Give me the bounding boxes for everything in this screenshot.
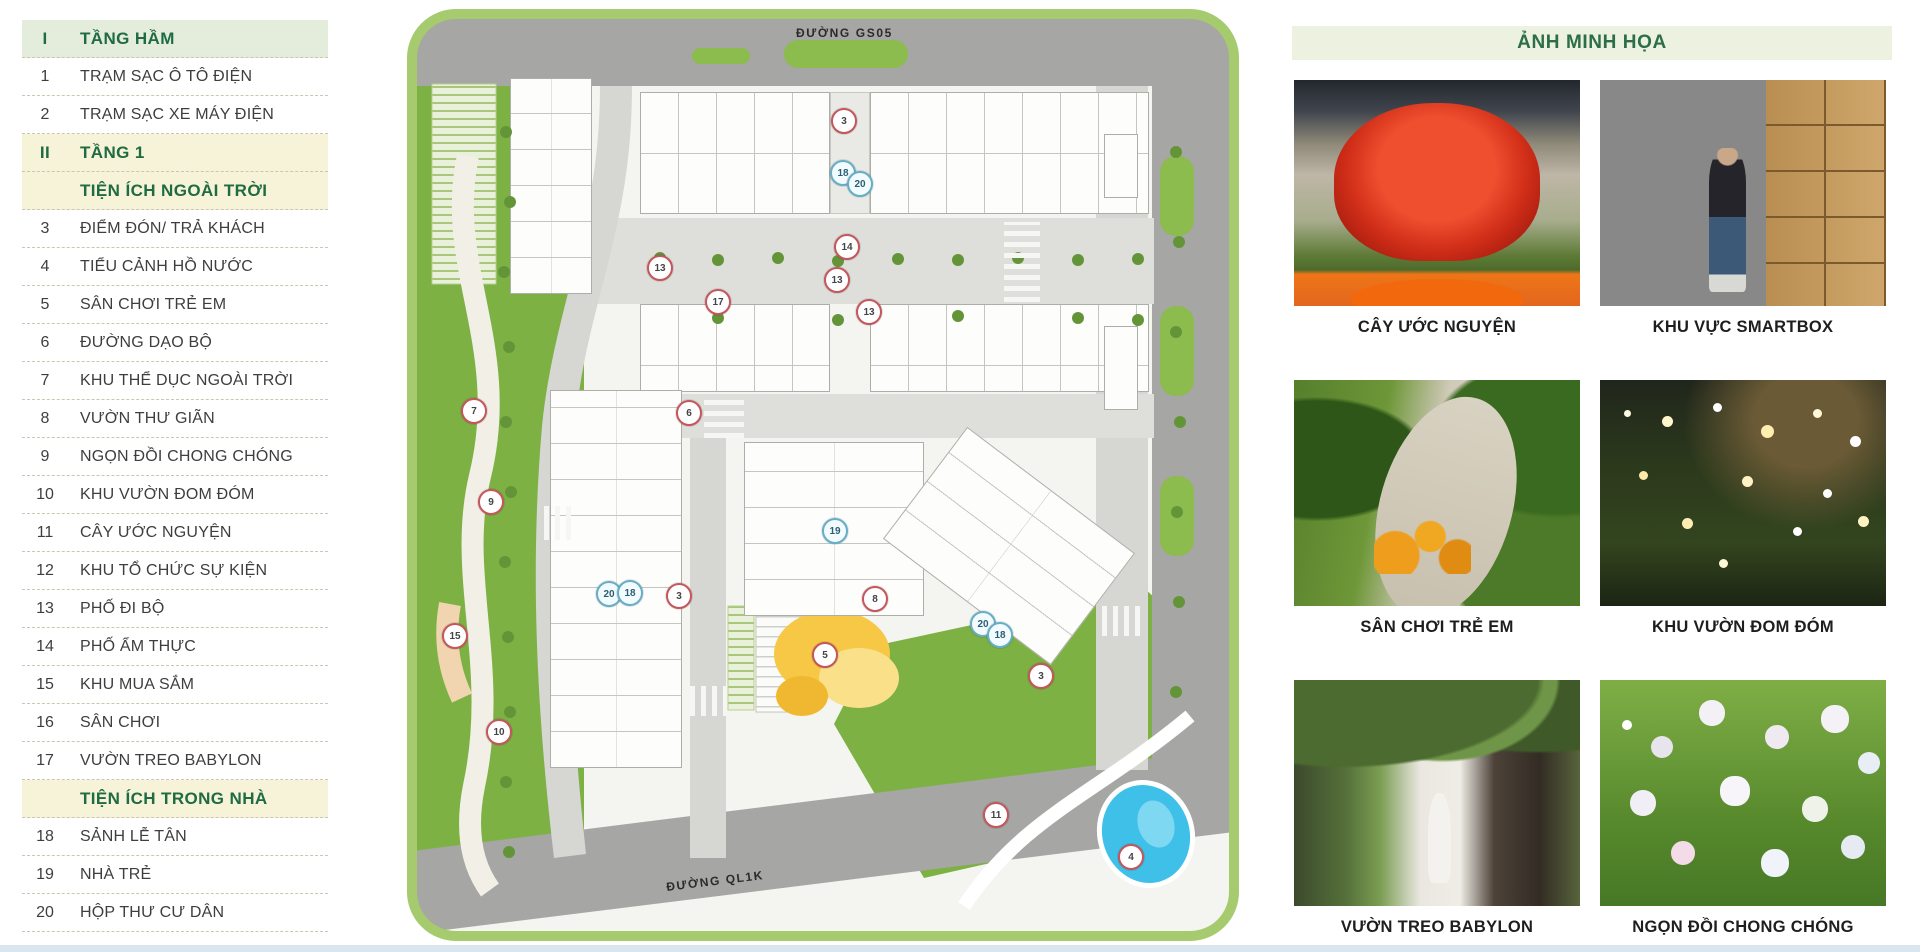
legend-row-label: NGỌN ĐỒI CHONG CHÓNG [68,448,293,466]
plan-marker-17: 17 [705,289,731,315]
plan-marker-number: 13 [831,275,842,286]
legend-row-number: 17 [22,752,68,770]
legend-row-5: 5 SÂN CHƠI TRẺ EM [22,286,328,324]
photo-caption: SÂN CHƠI TRẺ EM [1284,618,1590,637]
legend-row-label: TIỂU CẢNH HỒ NƯỚC [68,258,253,276]
plan-marker-19: 19 [822,518,848,544]
legend-row-number: 20 [22,904,68,922]
road-label-gs05: ĐƯỜNG GS05 [796,26,893,40]
legend-row-4: 4 TIỂU CẢNH HỒ NƯỚC [22,248,328,286]
plan-marker-number: 10 [493,727,504,738]
legend-row-label: HỘP THƯ CƯ DÂN [68,904,224,922]
plan-marker-number: 18 [994,630,1005,641]
plan-marker-7: 7 [461,398,487,424]
median-tree-dots [1170,146,1182,158]
photo-image [1294,80,1580,306]
plan-marker-20: 20 [847,171,873,197]
plan-marker-5: 5 [812,642,838,668]
legend-row-number: 16 [22,714,68,732]
gallery-photo-1: CÂY ƯỚC NGUYỆN [1294,80,1580,306]
plan-marker-13: 13 [856,299,882,325]
crosswalk [544,506,574,540]
site-plan-map: ĐƯỜNG GS05 ĐƯỜNG QL1K 3 18 20 14 13 13 1… [404,6,1242,944]
legend-row-number: 1 [22,68,68,86]
plan-marker-18: 18 [987,622,1013,648]
building-block-row-a1 [640,92,830,214]
plan-marker-9: 9 [478,489,504,515]
plan-marker-number: 8 [872,594,878,605]
legend-row-14: 14 PHỐ ẨM THỰC [22,628,328,666]
legend-row-number: 8 [22,410,68,428]
legend-row-label: TIỆN ÍCH NGOÀI TRỜI [68,181,267,201]
plan-marker-number: 17 [712,297,723,308]
legend-row-number: 11 [22,524,68,542]
legend-row-number: 2 [22,106,68,124]
legend-row-10: 10 KHU VƯỜN ĐOM ĐÓM [22,476,328,514]
legend-row-number: 18 [22,828,68,846]
masterplan-page: I TẦNG HẦM 1 TRẠM SẠC Ô TÔ ĐIỆN 2 TRẠM S… [0,0,1920,952]
crosswalk [1102,606,1142,636]
plan-marker-11: 11 [983,802,1009,828]
legend-row-i: I TẦNG HẦM [22,20,328,58]
gallery-header-band: ẢNH MINH HỌA [1292,26,1892,60]
legend-row-number: 13 [22,600,68,618]
legend-row-label: PHỐ ĐI BỘ [68,600,164,618]
building-block-small-2 [1104,326,1138,410]
plan-marker-10: 10 [486,719,512,745]
legend-row-label: KHU THỂ DỤC NGOÀI TRỜI [68,372,293,390]
legend-row-17: 17 VƯỜN TREO BABYLON [22,742,328,780]
legend-row-number: I [22,29,68,49]
photo-image [1600,80,1886,306]
plan-marker-number: 5 [822,650,828,661]
photo-image [1294,380,1580,606]
plan-marker-number: 6 [686,408,692,419]
legend-row-label: ĐƯỜNG DẠO BỘ [68,334,212,352]
gallery-photo-4: KHU VƯỜN ĐOM ĐÓM [1600,380,1886,606]
plan-marker-number: 13 [863,307,874,318]
legend-row-label: TIỆN ÍCH TRONG NHÀ [68,789,268,809]
plan-marker-number: 14 [841,242,852,253]
legend-row: TIỆN ÍCH NGOÀI TRỜI [22,172,328,210]
legend-row-label: SẢNH LỄ TÂN [68,828,187,846]
plan-marker-3: 3 [1028,663,1054,689]
legend-row-7: 7 KHU THỂ DỤC NGOÀI TRỜI [22,362,328,400]
building-block-c [550,390,682,768]
plan-marker-13: 13 [824,267,850,293]
photo-caption: CÂY ƯỚC NGUYỆN [1284,318,1590,337]
gallery-photo-2: KHU VỰC SMARTBOX [1600,80,1886,306]
legend-row-12: 12 KHU TỔ CHỨC SỰ KIỆN [22,552,328,590]
photo-image [1294,680,1580,906]
legend-row: TIỆN ÍCH TRONG NHÀ [22,780,328,818]
legend-row-1: 1 TRẠM SẠC Ô TÔ ĐIỆN [22,58,328,96]
plan-marker-number: 3 [1038,671,1044,682]
legend-row-label: PHỐ ẨM THỰC [68,638,196,656]
plan-marker-15: 15 [442,623,468,649]
legend-row-number: 4 [22,258,68,276]
legend-row-3: 3 ĐIỂM ĐÓN/ TRẢ KHÁCH [22,210,328,248]
legend-row-number: II [22,143,68,163]
legend-row-number: 15 [22,676,68,694]
plan-marker-14: 14 [834,234,860,260]
photo-image [1600,380,1886,606]
plan-marker-number: 20 [977,619,988,630]
legend-row-label: CÂY ƯỚC NGUYỆN [68,524,232,542]
legend-row-15: 15 KHU MUA SẮM [22,666,328,704]
plan-marker-number: 3 [841,116,847,127]
plan-marker-number: 20 [603,589,614,600]
plan-marker-number: 18 [624,588,635,599]
plan-marker-number: 4 [1128,852,1134,863]
legend-row-number: 19 [22,866,68,884]
legend-row-label: KHU VƯỜN ĐOM ĐÓM [68,486,255,504]
legend-row-2: 2 TRẠM SẠC XE MÁY ĐIỆN [22,96,328,134]
plan-marker-number: 7 [471,406,477,417]
legend-row-6: 6 ĐƯỜNG DẠO BỘ [22,324,328,362]
legend-row-label: TẦNG HẦM [68,29,175,49]
legend-row-label: TRẠM SẠC XE MÁY ĐIỆN [68,106,274,124]
legend-row-label: SÂN CHƠI [68,714,160,732]
legend-row-number: 10 [22,486,68,504]
photo-caption: KHU VƯỜN ĐOM ĐÓM [1590,618,1896,637]
plan-marker-number: 15 [449,631,460,642]
legend-row-label: SÂN CHƠI TRẺ EM [68,296,226,314]
legend-row-number: 3 [22,220,68,238]
photo-caption: VƯỜN TREO BABYLON [1284,918,1590,937]
plan-marker-3: 3 [666,583,692,609]
bottom-edge-strip [0,945,1920,952]
plan-marker-4: 4 [1118,844,1144,870]
gallery-photo-6: NGỌN ĐỒI CHONG CHÓNG [1600,680,1886,906]
crosswalk [1004,222,1040,302]
photo-image [1600,680,1886,906]
legend-row-11: 11 CÂY ƯỚC NGUYỆN [22,514,328,552]
legend-row-label: KHU MUA SẮM [68,676,194,694]
building-block-small-1 [1104,134,1138,198]
plan-marker-number: 3 [676,591,682,602]
legend-row-number: 14 [22,638,68,656]
plan-marker-6: 6 [676,400,702,426]
plan-marker-number: 20 [854,179,865,190]
photo-caption: KHU VỰC SMARTBOX [1590,318,1896,337]
plan-marker-18: 18 [617,580,643,606]
legend-row-label: ĐIỂM ĐÓN/ TRẢ KHÁCH [68,220,265,238]
legend-row-20: 20 HỘP THƯ CƯ DÂN [22,894,328,932]
legend-row-label: TẦNG 1 [68,143,145,163]
legend-row-label: VƯỜN TREO BABYLON [68,752,262,770]
legend-row-19: 19 NHÀ TRẺ [22,856,328,894]
legend-row-number: 6 [22,334,68,352]
plan-marker-number: 13 [654,263,665,274]
gallery-photo-3: SÂN CHƠI TRẺ EM [1294,380,1580,606]
plan-marker-3: 3 [831,108,857,134]
legend-row-8: 8 VƯỜN THƯ GIÃN [22,400,328,438]
legend-row-label: VƯỜN THƯ GIÃN [68,410,215,428]
building-block-row-b1 [640,304,830,392]
plan-marker-number: 18 [837,168,848,179]
legend-row-label: TRẠM SẠC Ô TÔ ĐIỆN [68,68,252,86]
building-block-tall [510,78,592,294]
legend-row-18: 18 SẢNH LỄ TÂN [22,818,328,856]
legend-row-number: 5 [22,296,68,314]
legend-row-label: KHU TỔ CHỨC SỰ KIỆN [68,562,267,580]
photo-gallery: CÂY ƯỚC NGUYỆN KHU VỰC SMARTBOX SÂN CHƠI… [1294,80,1886,906]
plan-marker-8: 8 [862,586,888,612]
legend-row-16: 16 SÂN CHƠI [22,704,328,742]
legend-row-label: NHÀ TRẺ [68,866,151,884]
gallery-photo-5: VƯỜN TREO BABYLON [1294,680,1580,906]
legend-row-number: 9 [22,448,68,466]
crosswalk [690,686,726,716]
gallery-title: ẢNH MINH HỌA [1517,32,1667,54]
legend-row-number: 12 [22,562,68,580]
plan-marker-13: 13 [647,255,673,281]
lawn-tree-dots [500,126,512,138]
photo-caption: NGỌN ĐỒI CHONG CHÓNG [1590,918,1896,937]
legend-panel: I TẦNG HẦM 1 TRẠM SẠC Ô TÔ ĐIỆN 2 TRẠM S… [22,20,328,932]
plan-marker-number: 19 [829,526,840,537]
legend-row-13: 13 PHỐ ĐI BỘ [22,590,328,628]
legend-row-9: 9 NGỌN ĐỒI CHONG CHÓNG [22,438,328,476]
crosswalk [704,396,744,438]
plan-marker-number: 11 [991,810,1002,821]
plan-marker-number: 9 [488,497,494,508]
legend-row-ii: II TẦNG 1 [22,134,328,172]
legend-row-number: 7 [22,372,68,390]
